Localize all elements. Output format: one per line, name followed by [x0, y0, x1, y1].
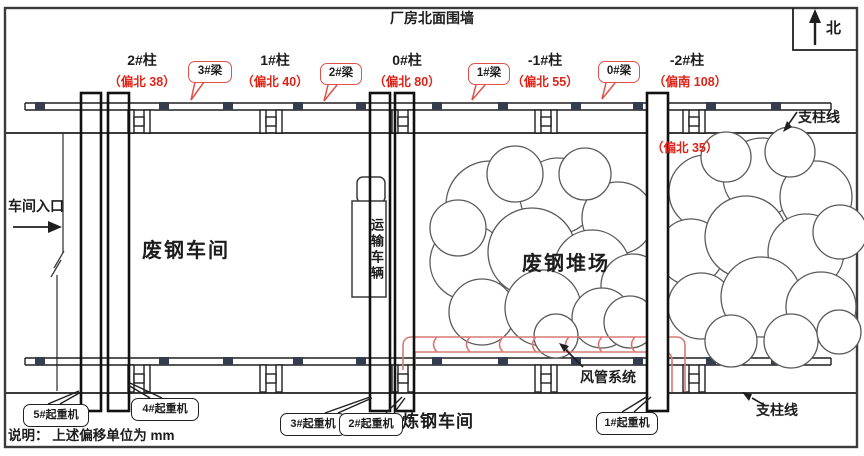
- entrance-wall-line: [51, 133, 64, 391]
- factory-plan-diagram: 厂房北面围墙 北 2#柱 1#柱 0#柱 -1#柱 -2#柱 （偏北 38） （…: [0, 0, 864, 456]
- column-label-2: 2#柱: [107, 50, 177, 70]
- crane-callout-2: 2#起重机: [339, 413, 403, 436]
- north-label: 北: [826, 17, 841, 38]
- north-compass-icon: [793, 8, 857, 50]
- scrap-yard-label: 废钢堆场: [522, 247, 610, 276]
- entrance-arrow-icon: [13, 221, 62, 233]
- steel-workshop-label: 炼钢车间: [402, 407, 474, 432]
- crane-column-4: [108, 93, 129, 411]
- support-line-label-bottom: 支柱线: [756, 400, 798, 420]
- transport-vehicle-label: 运输车辆: [352, 206, 386, 294]
- beam-callout-0: 0#梁: [598, 61, 640, 83]
- beam-callout-2: 2#梁: [320, 63, 362, 85]
- crane-callout-4: 4#起重机: [131, 398, 199, 421]
- scrap-workshop-label: 废钢车间: [142, 234, 230, 263]
- page-title: 厂房北面围墙: [350, 8, 514, 28]
- offset-label-neg2: （偏南 108）: [642, 71, 738, 90]
- column-label-neg2: -2#柱: [652, 50, 722, 70]
- offset-label-support: （偏北 35）: [651, 137, 718, 156]
- beam-callout-1: 1#梁: [468, 63, 510, 85]
- offset-label-neg1: （偏北 55）: [497, 71, 593, 90]
- column-label-0: 0#柱: [372, 50, 442, 70]
- column-label-neg1: -1#柱: [510, 50, 580, 70]
- offset-label-2: （偏北 38）: [94, 71, 190, 90]
- crane-column-2: [395, 93, 414, 411]
- scrap-yard-cloud-right: [658, 127, 864, 368]
- offset-label-1: （偏北 40）: [227, 71, 323, 90]
- beam-callout-3: 3#梁: [188, 61, 232, 83]
- duct-system-label: 风管系统: [580, 367, 636, 387]
- crane-column-5: [81, 93, 101, 411]
- entrance-label: 车间入口: [8, 196, 64, 216]
- crane-callout-3: 3#起重机: [280, 413, 346, 436]
- note-units: 说明： 上述偏移单位为 mm: [8, 424, 175, 444]
- column-label-1: 1#柱: [240, 50, 310, 70]
- top-column-h-symbols: [128, 110, 705, 133]
- crane-callout-5: 5#起重机: [23, 404, 89, 427]
- crane-callout-1: 1#起重机: [596, 412, 658, 435]
- offset-label-0: （偏北 80）: [359, 71, 455, 90]
- support-line-label-top: 支柱线: [798, 107, 840, 127]
